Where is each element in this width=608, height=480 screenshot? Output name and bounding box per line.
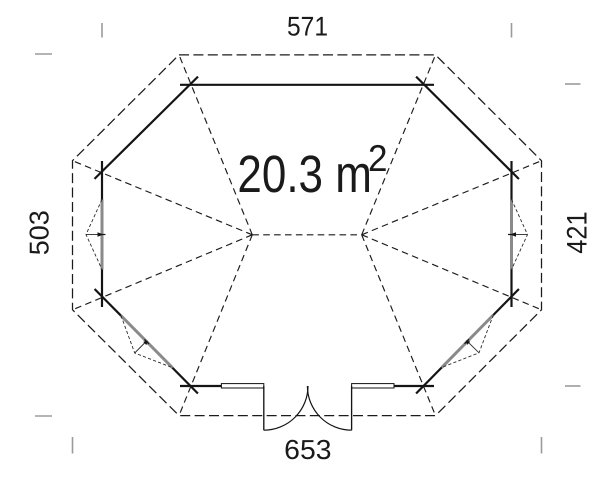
svg-text:571: 571 [287, 12, 328, 42]
svg-text:653: 653 [284, 434, 331, 465]
svg-text:20.3 m: 20.3 m [237, 145, 372, 204]
svg-text:421: 421 [561, 211, 593, 253]
svg-text:2: 2 [368, 137, 388, 179]
svg-text:503: 503 [23, 210, 54, 255]
